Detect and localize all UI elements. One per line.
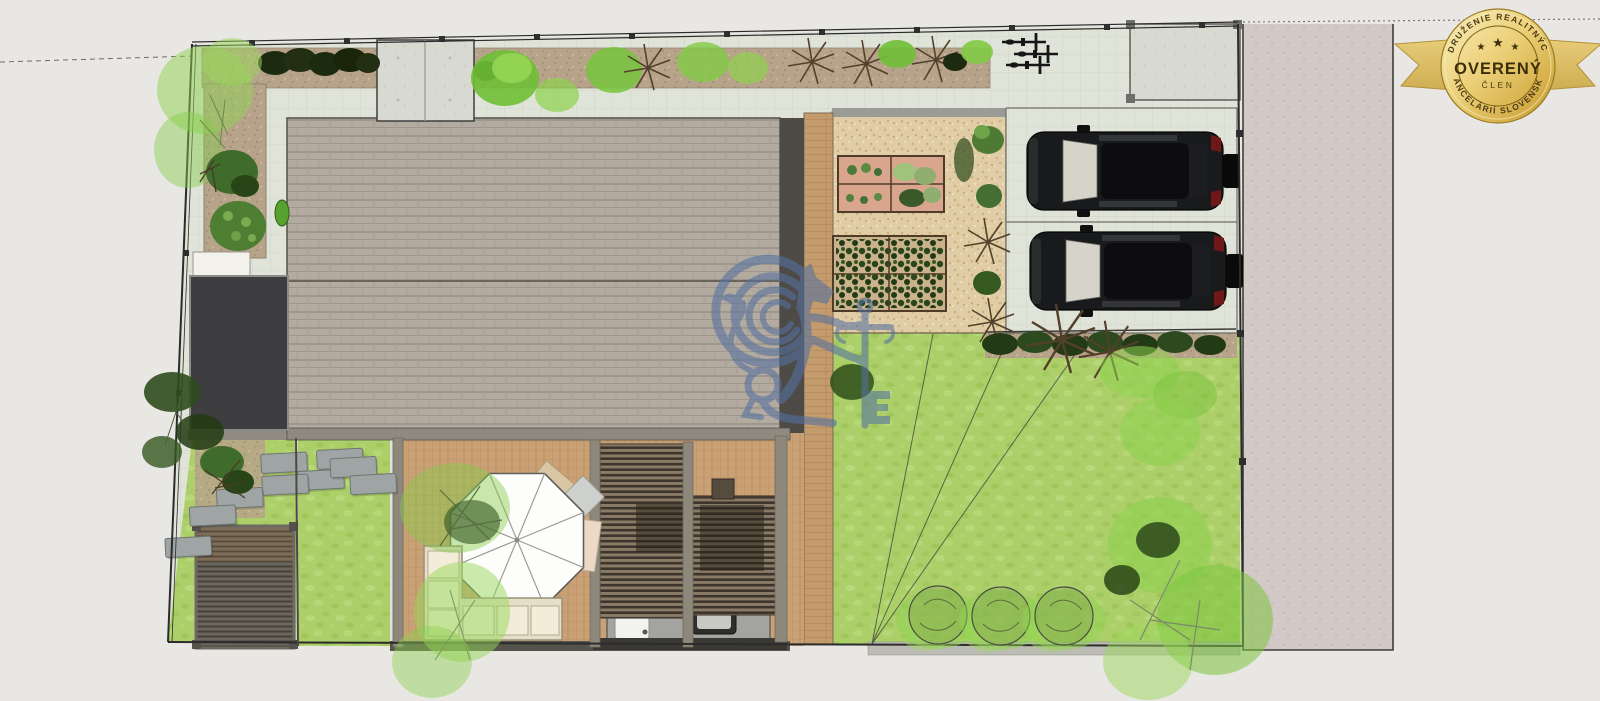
badge-main-text: OVERENÝ: [1454, 59, 1542, 78]
pergola-beam: [683, 442, 693, 647]
pergola-beam: [775, 436, 787, 642]
pergola-beam: [393, 438, 403, 647]
badge-star: ★: [1511, 42, 1520, 53]
garden-edge: [832, 108, 1006, 117]
raised-bed-herbs: [838, 156, 944, 212]
badge-star: ★: [1477, 42, 1486, 53]
small-plant: [275, 200, 289, 226]
site-plan-canvas: ZDRUŽENIE REALITNÝCH KANCELÁRIÍ SLOVENSK…: [0, 0, 1600, 701]
garage-flat-roof: [190, 276, 288, 430]
car-1: [1027, 125, 1240, 217]
utility-pad: [193, 252, 250, 278]
badge-sub-text: ČLEN: [1482, 80, 1515, 90]
side-walkway: [804, 113, 833, 644]
sidewalk: [1243, 24, 1393, 650]
roof-eave-band: [287, 428, 790, 440]
chair: [712, 479, 734, 499]
raised-bed-vegetables: [833, 236, 946, 311]
site-plan-screenshot: ZDRUŽENIE REALITNÝCH KANCELÁRIÍ SLOVENSK…: [0, 0, 1600, 701]
refuse-pad: [1126, 20, 1242, 103]
badge-star: ★: [1492, 35, 1504, 50]
entrance-gate-pad: [377, 40, 474, 121]
car-2: [1030, 225, 1243, 317]
lawn-trees-row: [896, 586, 1106, 652]
